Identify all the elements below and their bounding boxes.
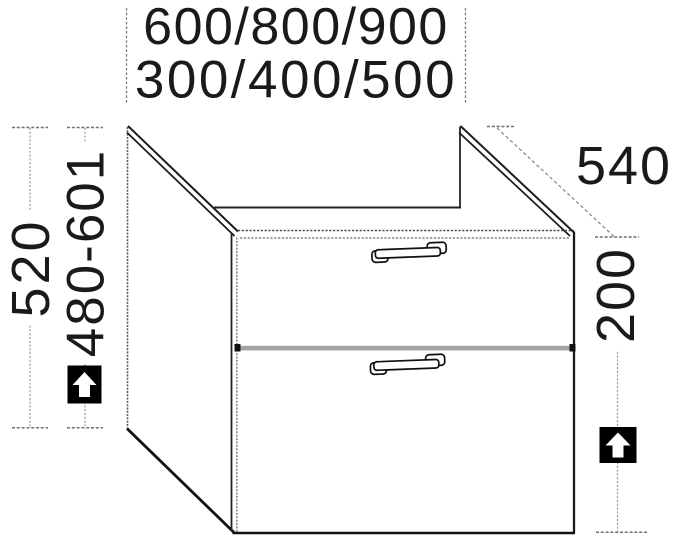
divider-end-right (570, 344, 576, 352)
dim-width-options: 600/800/900 (143, 1, 449, 53)
left-panel-top-edge-outer (128, 126, 238, 232)
dim-height: 520 (4, 211, 58, 324)
dim-drawer-front-height: 200 (589, 240, 643, 350)
divider-band (238, 346, 572, 351)
dim-width-options-secondary: 300/400/500 (135, 54, 457, 107)
divider-end-left (235, 344, 241, 352)
right-side-panel (459, 126, 574, 236)
left-panel-bottom-edge (127, 429, 234, 533)
dim-depth: 540 (576, 139, 672, 193)
drawer-handle-top (372, 242, 447, 262)
drawer-handle-bottom (370, 354, 445, 374)
right-panel-top-edge-inner (459, 133, 570, 237)
drawer-divider (235, 344, 576, 352)
right-panel-top-edge-outer (461, 126, 575, 233)
dim-height-range: 480-601 (60, 142, 113, 365)
height-adjust-icon-right (600, 427, 637, 463)
handle-bar (374, 359, 439, 370)
left-side-panel (127, 126, 238, 533)
cabinet-front (233, 231, 576, 534)
height-adjust-icon-left (68, 366, 102, 404)
cabinet-technical-drawing: 600/800/900 300/400/500 520 480-601 540 … (0, 0, 678, 538)
back-panel (214, 127, 461, 208)
handle-bar (375, 247, 440, 258)
left-panel-top-edge-inner (127, 133, 235, 237)
